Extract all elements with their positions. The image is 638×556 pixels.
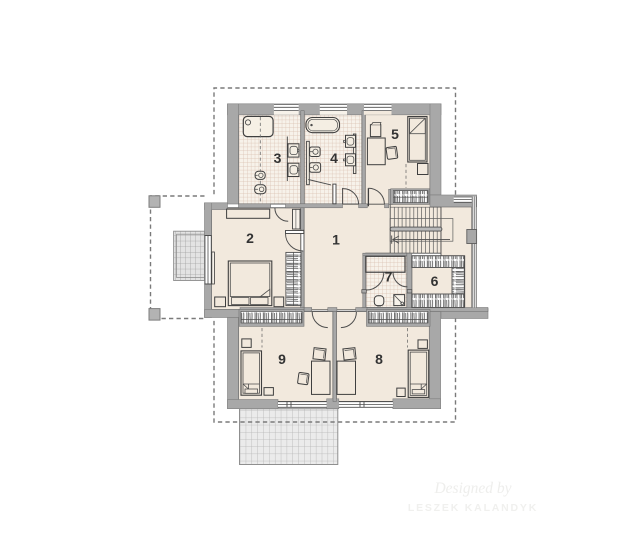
svg-text:3: 3	[274, 150, 282, 166]
svg-text:7: 7	[385, 269, 393, 285]
svg-text:9: 9	[278, 351, 286, 367]
svg-text:6: 6	[431, 273, 439, 289]
svg-text:1: 1	[332, 232, 340, 248]
svg-text:5: 5	[391, 126, 399, 142]
svg-text:Designed by: Designed by	[433, 480, 511, 497]
svg-text:8: 8	[375, 351, 383, 367]
svg-text:LESZEK KALANDYK: LESZEK KALANDYK	[408, 502, 538, 514]
svg-text:2: 2	[246, 230, 254, 246]
svg-text:4: 4	[330, 150, 338, 166]
